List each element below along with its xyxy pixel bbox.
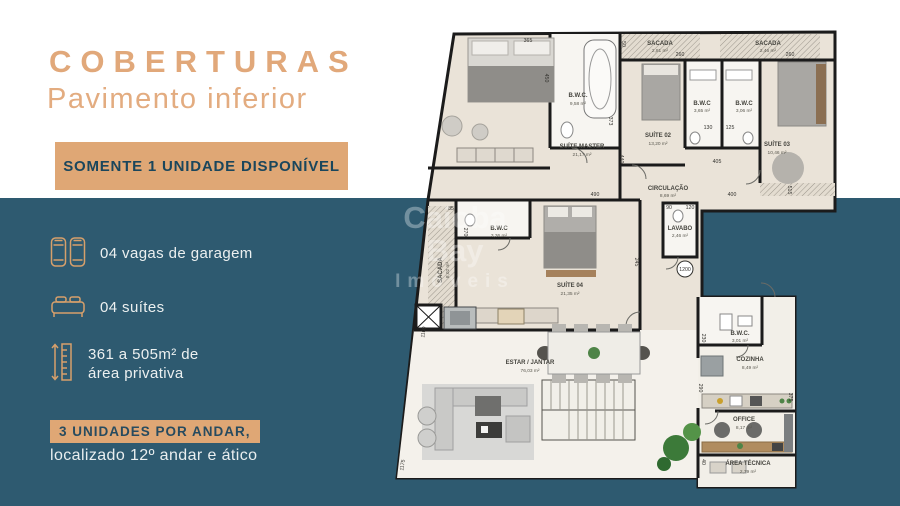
room-label-cozinha: COZINHA [736, 357, 764, 363]
room-label-bwc-a: B.W.C [693, 101, 711, 107]
room-area-bwc-service: 3,01 m² [732, 338, 749, 344]
dimension-label: 290 [697, 384, 703, 393]
room-area-suite-04: 21,35 m² [561, 291, 580, 297]
balcony-1 [620, 34, 700, 60]
dimension-label: 90 [666, 205, 672, 211]
room-area-suite-02: 13,20 m² [649, 141, 668, 147]
dimension-label: 400 [728, 192, 737, 198]
dimension-label: 515 [786, 186, 792, 195]
room-label-bwc-b: B.W.C [735, 101, 753, 107]
room-area-office: 8,17 m² [736, 425, 753, 431]
feature-garage: 04 vagas de garagem [50, 236, 253, 273]
units-badge: 3 UNIDADES POR ANDAR, [50, 420, 260, 443]
dimension-label: 260 [676, 52, 685, 58]
room-label-bwc-service: B.W.C. [731, 331, 750, 337]
availability-banner-text: SOMENTE 1 UNIDADE DISPONÍVEL [63, 158, 340, 175]
garage-cars-icon [50, 236, 86, 273]
room-area-lavabo: 2,46 m² [672, 233, 689, 239]
dimension-label: 85 [448, 206, 454, 212]
dimension-label: 405 [713, 159, 722, 165]
room-label-estar: ESTAR / JANTAR [506, 360, 555, 366]
location-caption: localizado 12º andar e ático [50, 447, 257, 465]
dimension-label: 125 [726, 125, 735, 131]
room-label-sacada-1: SACADA [647, 41, 673, 47]
page-background: COBERTURAS Pavimento inferior SOMENTE 1 … [0, 0, 900, 506]
availability-banner: SOMENTE 1 UNIDADE DISPONÍVEL [55, 142, 348, 190]
feature-suites-label: 04 suítes [100, 299, 164, 318]
room-area-cozinha: 8,49 m² [742, 365, 759, 371]
dimension-label: 260 [786, 52, 795, 58]
dimension-label: 230 [700, 334, 706, 343]
room-area-suite-master: 21,17 m² [573, 152, 592, 158]
room-label-bwc-4: B.W.C [490, 226, 508, 232]
dimension-label: 490 [591, 192, 600, 198]
page-subtitle: Pavimento inferior [47, 83, 308, 116]
room-area-bwc-4: 3,36 m² [491, 233, 508, 239]
dimension-label: 120 [686, 205, 695, 211]
dimension-label: 245 [633, 258, 639, 267]
bed-icon [50, 292, 86, 325]
dimension-label: 130 [704, 125, 713, 131]
room-area-sacada-3: 8,02 m² [445, 261, 451, 278]
room-area-sacada-1: 2,81 m² [652, 48, 669, 54]
room-area-estar: 76,03 m² [521, 368, 540, 374]
room-label-circulacao: CIRCULAÇÃO [648, 185, 689, 192]
room-area-area-tecnica: 2,79 m² [740, 469, 757, 475]
room-label-suite-04: SUÍTE 04 [557, 281, 584, 289]
dimension-label: 373 [607, 117, 613, 126]
balcony-4 [760, 183, 835, 196]
room-label-suite-master: SUÍTE MASTER [560, 142, 605, 150]
level-marker-text: 1200 [679, 267, 691, 273]
feature-suites: 04 suítes [50, 292, 164, 325]
room-area-sacada-2: 2,46 m² [760, 48, 777, 54]
room-label-area-tecnica: ÁREA TÉCNICA [725, 459, 771, 467]
room-label-sacada-2: SACADA [755, 41, 781, 47]
balcony-2 [720, 34, 820, 60]
room-label-bwc-master: B.W.C. [569, 93, 588, 99]
room-area-bwc-master: 9,58 m² [570, 101, 587, 107]
floorplan: SUÍTE MASTER 21,17 m² B.W.C. 9,58 m² SAC… [380, 18, 860, 500]
room-label-sacada-3: SACADA [438, 257, 444, 283]
room-label-lavabo: LAVABO [668, 226, 693, 232]
room-label-suite-03: SUÍTE 03 [764, 140, 791, 148]
feature-garage-label: 04 vagas de garagem [100, 245, 253, 264]
feature-area-label: 361 a 505m² de área privativa [88, 346, 199, 384]
dimension-label: 365 [524, 38, 533, 44]
dimension-label: 440 [618, 155, 624, 164]
feature-area: 361 a 505m² de área privativa [50, 341, 199, 388]
room-label-suite-02: SUÍTE 02 [645, 131, 672, 139]
dimension-label: 40 [700, 459, 706, 465]
staircase [542, 380, 635, 440]
ruler-icon [50, 341, 74, 388]
dimension-label: 270 [462, 228, 468, 237]
room-label-office: OFFICE [733, 417, 755, 423]
feature-area-line2: área privativa [88, 365, 184, 382]
dimension-label: 50 [620, 41, 626, 47]
room-area-circulacao: 8,69 m² [660, 193, 677, 199]
sofa-set [418, 384, 534, 460]
room-area-suite-03: 10,46 m² [768, 150, 787, 156]
dimension-label: 450 [543, 74, 549, 83]
feature-area-line1: 361 a 505m² de [88, 346, 199, 363]
level-marker: 1200 [677, 261, 693, 277]
dimension-label: 375 [787, 393, 793, 402]
room-area-bwc-a: 3,65 m² [694, 108, 711, 114]
page-title: COBERTURAS [49, 44, 358, 80]
room-area-bwc-b: 3,06 m² [736, 108, 753, 114]
dining-table [537, 324, 650, 383]
